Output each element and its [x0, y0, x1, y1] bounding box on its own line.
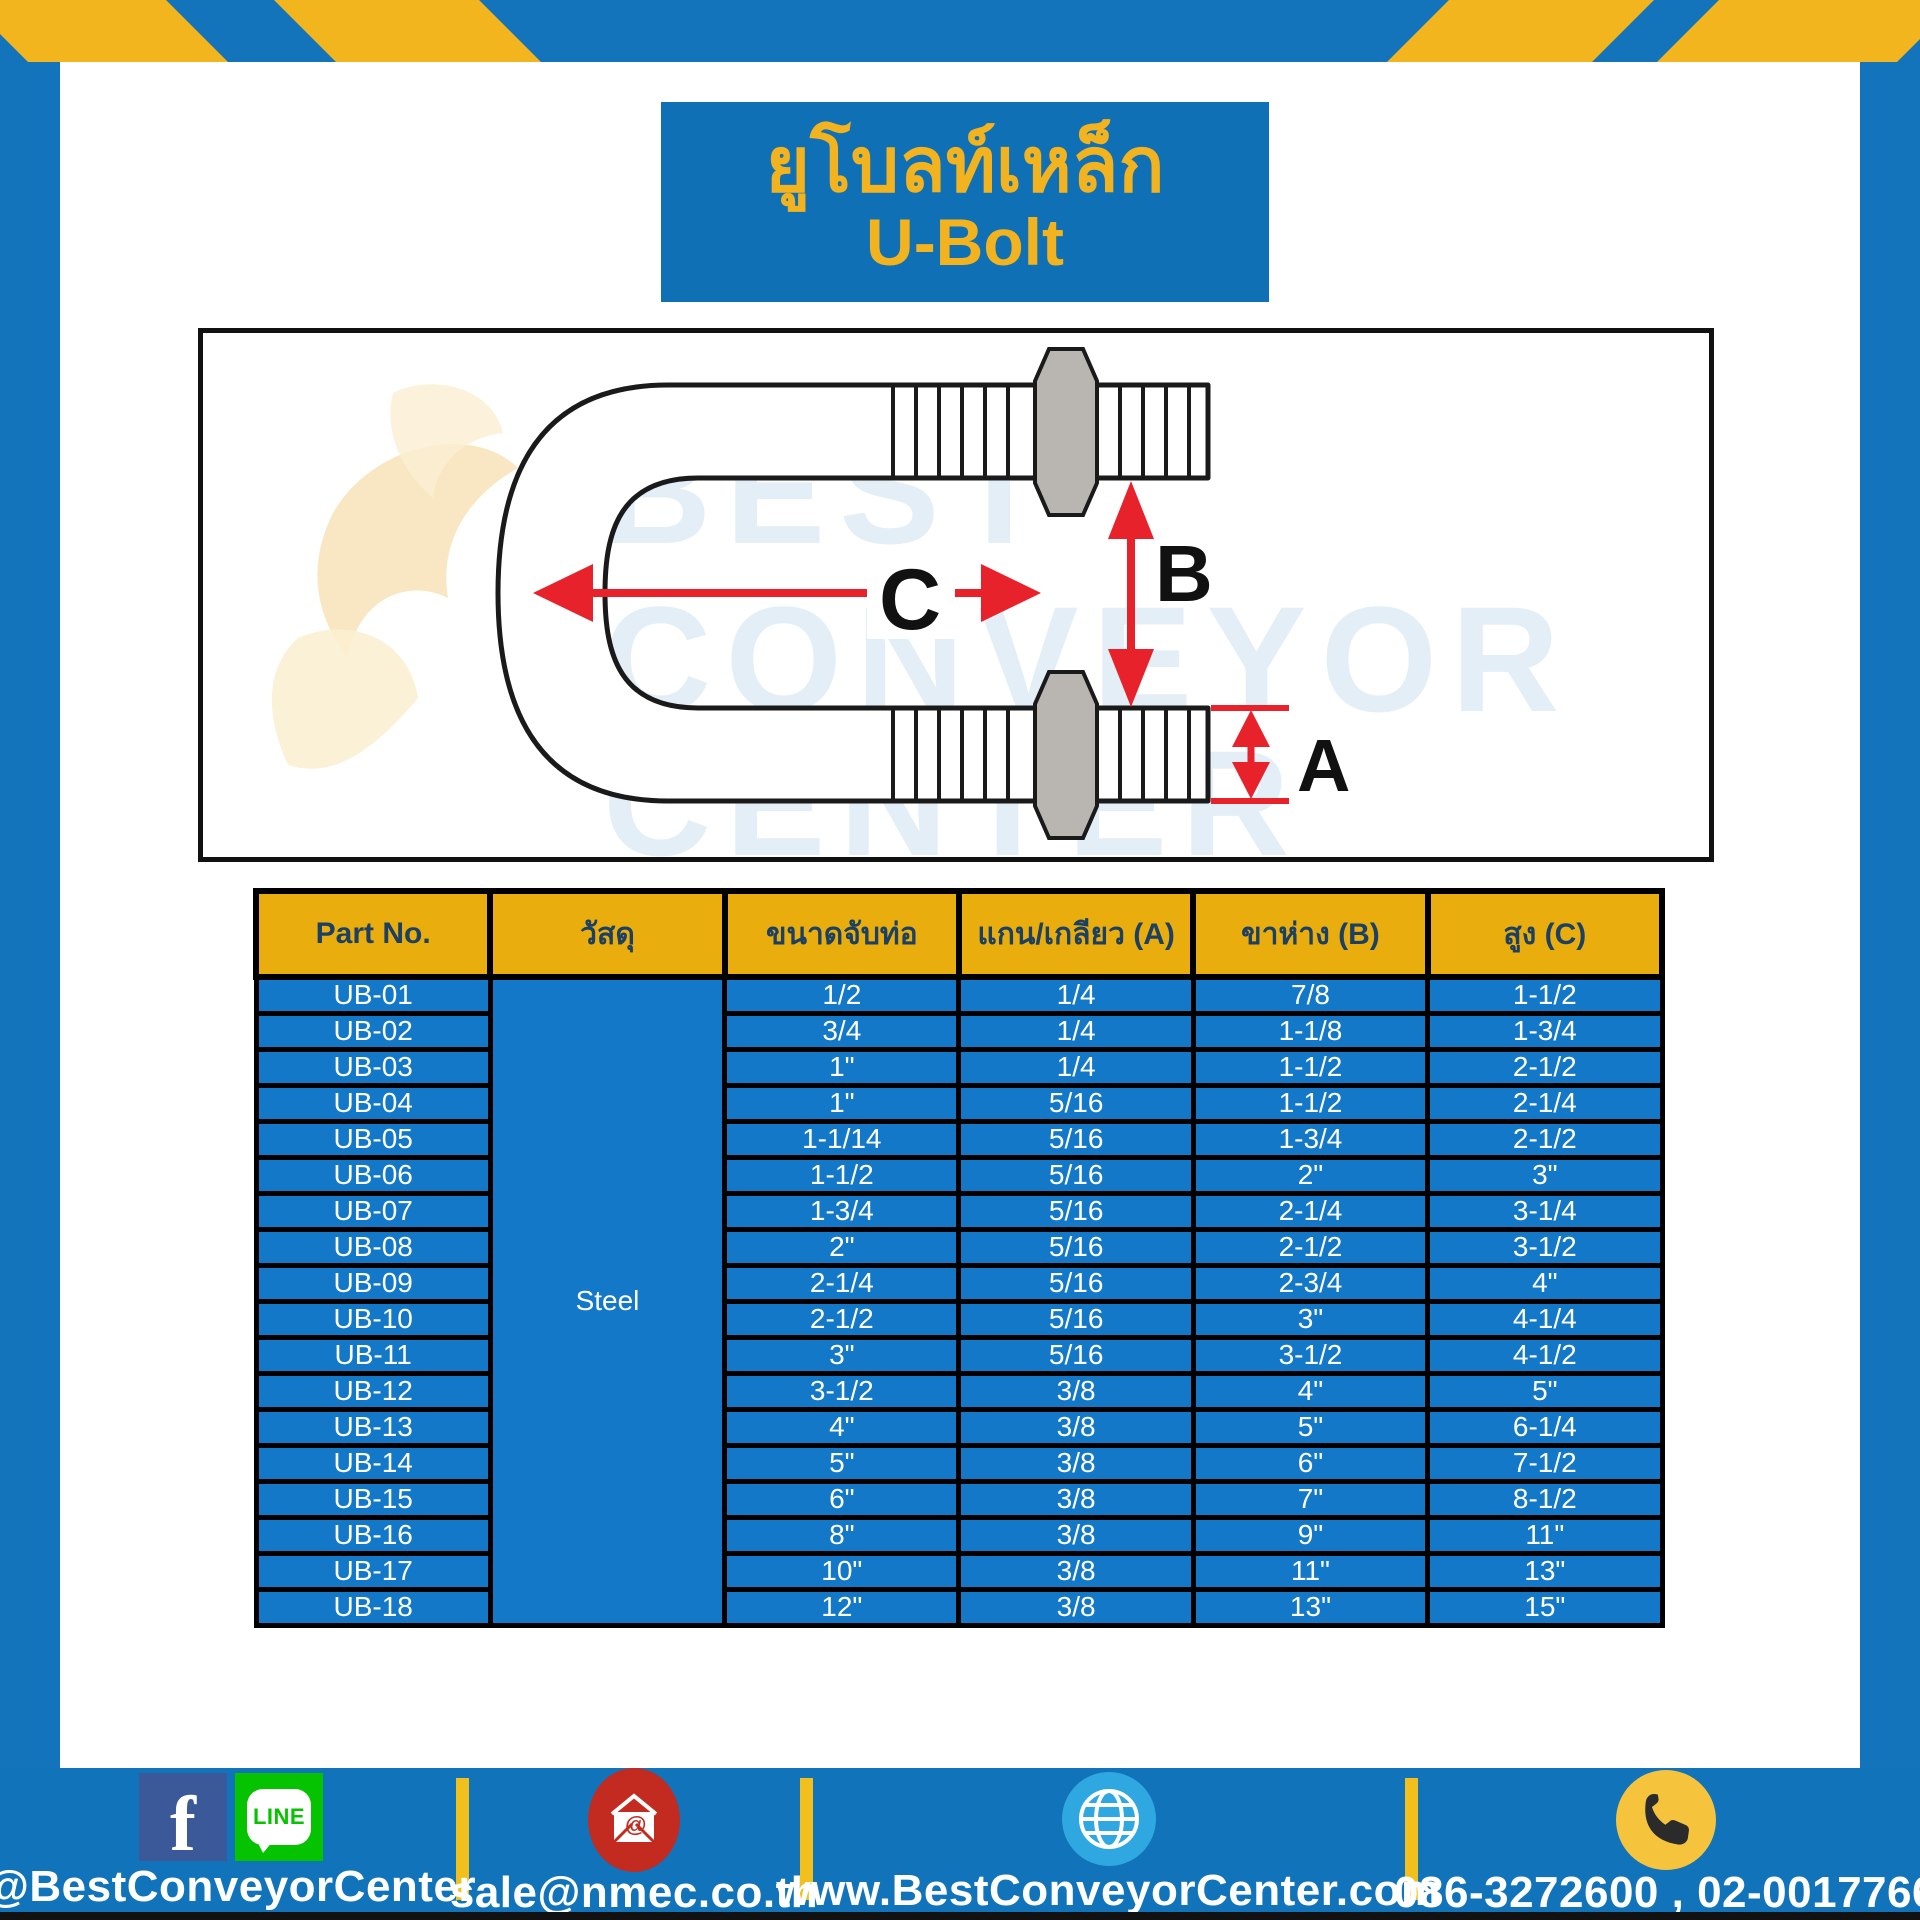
content-sheet: ยูโบลท์เหล็ก U-Bolt BEST CONVEYOR CENTER [60, 62, 1860, 1768]
width-b-cell: 11" [1193, 1553, 1427, 1589]
width-b-cell: 1-3/4 [1193, 1121, 1427, 1157]
product-title-thai: ยูโบลท์เหล็ก [766, 126, 1165, 206]
width-b-cell: 1-1/2 [1193, 1085, 1427, 1121]
part-no-cell: UB-11 [256, 1337, 490, 1373]
table-row: UB-102-1/25/163"4-1/4 [256, 1301, 1662, 1337]
pipe-size-cell: 6" [725, 1481, 959, 1517]
pipe-size-cell: 1-1/14 [725, 1121, 959, 1157]
height-c-cell: 3-1/4 [1428, 1193, 1662, 1229]
footer-phone-section: 086-3272600 , 02-0017766 [1411, 1768, 1920, 1912]
table-row: UB-123-1/23/84"5" [256, 1373, 1662, 1409]
website-text: www.BestConveyorCenter.com [776, 1866, 1440, 1916]
hazard-stripe [268, 0, 549, 62]
pipe-size-cell: 3-1/2 [725, 1373, 959, 1409]
part-no-cell: UB-01 [256, 977, 490, 1013]
width-b-cell: 7" [1193, 1481, 1427, 1517]
thread-a-cell: 3/8 [959, 1517, 1193, 1553]
spec-table-body: UB-01Steel1/21/47/81-1/2UB-023/41/41-1/8… [256, 977, 1662, 1625]
thread-a-cell: 3/8 [959, 1445, 1193, 1481]
height-c-cell: 2-1/2 [1428, 1121, 1662, 1157]
part-no-cell: UB-15 [256, 1481, 490, 1517]
part-no-cell: UB-03 [256, 1049, 490, 1085]
dim-a-label: A [1297, 724, 1350, 807]
pipe-size-cell: 1-3/4 [725, 1193, 959, 1229]
thread-a-cell: 1/4 [959, 977, 1193, 1013]
height-c-cell: 2-1/4 [1428, 1085, 1662, 1121]
product-title-box: ยูโบลท์เหล็ก U-Bolt [661, 102, 1269, 302]
width-b-cell: 6" [1193, 1445, 1427, 1481]
spec-table-header-cell: วัสดุ [490, 891, 724, 977]
width-b-cell: 2-1/2 [1193, 1229, 1427, 1265]
spec-table-header-cell: ขนาดจับท่อ [725, 891, 959, 977]
email-text: sale@nmec.co.th [450, 1868, 818, 1918]
width-b-cell: 1-1/8 [1193, 1013, 1427, 1049]
table-row: UB-1710"3/811"13" [256, 1553, 1662, 1589]
height-c-cell: 1-1/2 [1428, 977, 1662, 1013]
width-b-cell: 2-1/4 [1193, 1193, 1427, 1229]
width-b-cell: 2-3/4 [1193, 1265, 1427, 1301]
table-row: UB-156"3/87"8-1/2 [256, 1481, 1662, 1517]
part-no-cell: UB-04 [256, 1085, 490, 1121]
table-row: UB-1812"3/813"15" [256, 1589, 1662, 1625]
thread-a-cell: 3/8 [959, 1481, 1193, 1517]
width-b-cell: 4" [1193, 1373, 1427, 1409]
thread-a-cell: 5/16 [959, 1301, 1193, 1337]
pipe-size-cell: 1" [725, 1085, 959, 1121]
part-no-cell: UB-05 [256, 1121, 490, 1157]
part-no-cell: UB-07 [256, 1193, 490, 1229]
pipe-size-cell: 2-1/4 [725, 1265, 959, 1301]
part-no-cell: UB-14 [256, 1445, 490, 1481]
email-icon[interactable]: @ [588, 1768, 680, 1872]
width-b-cell: 7/8 [1193, 977, 1427, 1013]
footer-website-section: www.BestConveyorCenter.com [806, 1768, 1411, 1912]
ubolt-drawing-svg: BEST CONVEYOR CENTER [203, 333, 1709, 857]
nut-top [1035, 349, 1097, 515]
thread-a-cell: 3/8 [959, 1373, 1193, 1409]
width-b-cell: 3" [1193, 1301, 1427, 1337]
thread-a-cell: 1/4 [959, 1049, 1193, 1085]
height-c-cell: 6-1/4 [1428, 1409, 1662, 1445]
part-no-cell: UB-02 [256, 1013, 490, 1049]
table-row: UB-071-3/45/162-1/43-1/4 [256, 1193, 1662, 1229]
bottom-edge-strip [0, 1912, 1920, 1920]
social-handle-text: @BestConveyorCenter [0, 1862, 476, 1912]
catalog-page: { "title": { "line_thai": "ยูโบลท์เหล็ก"… [0, 0, 1920, 1920]
thread-a-cell: 5/16 [959, 1085, 1193, 1121]
height-c-cell: 3" [1428, 1157, 1662, 1193]
spec-table-header-cell: ขาห่าง (B) [1193, 891, 1427, 977]
height-c-cell: 15" [1428, 1589, 1662, 1625]
pipe-size-cell: 8" [725, 1517, 959, 1553]
width-b-cell: 3-1/2 [1193, 1337, 1427, 1373]
height-c-cell: 8-1/2 [1428, 1481, 1662, 1517]
height-c-cell: 2-1/2 [1428, 1049, 1662, 1085]
pipe-size-cell: 1" [725, 1049, 959, 1085]
pipe-size-cell: 3" [725, 1337, 959, 1373]
spec-table: Part No.วัสดุขนาดจับท่อแกน/เกลียว (A)ขาห… [253, 888, 1665, 1628]
facebook-icon[interactable]: f [139, 1773, 227, 1861]
thread-a-cell: 3/8 [959, 1409, 1193, 1445]
logo-watermark [272, 384, 518, 768]
table-row: UB-031"1/41-1/22-1/2 [256, 1049, 1662, 1085]
table-row: UB-01Steel1/21/47/81-1/2 [256, 977, 1662, 1013]
pipe-size-cell: 3/4 [725, 1013, 959, 1049]
part-no-cell: UB-17 [256, 1553, 490, 1589]
height-c-cell: 1-3/4 [1428, 1013, 1662, 1049]
line-icon[interactable]: LINE [235, 1773, 323, 1861]
dim-c-label: C [879, 552, 941, 648]
table-row: UB-041"5/161-1/22-1/4 [256, 1085, 1662, 1121]
ubolt-diagram: BEST CONVEYOR CENTER [198, 328, 1714, 862]
part-no-cell: UB-18 [256, 1589, 490, 1625]
pipe-size-cell: 1-1/2 [725, 1157, 959, 1193]
part-no-cell: UB-09 [256, 1265, 490, 1301]
table-row: UB-134"3/85"6-1/4 [256, 1409, 1662, 1445]
hazard-stripe [1379, 0, 1660, 62]
width-b-cell: 9" [1193, 1517, 1427, 1553]
pipe-size-cell: 1/2 [725, 977, 959, 1013]
width-b-cell: 13" [1193, 1589, 1427, 1625]
thread-a-cell: 5/16 [959, 1121, 1193, 1157]
height-c-cell: 13" [1428, 1553, 1662, 1589]
thread-a-cell: 5/16 [959, 1337, 1193, 1373]
part-no-cell: UB-13 [256, 1409, 490, 1445]
material-cell: Steel [490, 977, 724, 1625]
width-b-cell: 5" [1193, 1409, 1427, 1445]
table-row: UB-061-1/25/162"3" [256, 1157, 1662, 1193]
hazard-stripe [1649, 0, 1920, 62]
table-row: UB-168"3/89"11" [256, 1517, 1662, 1553]
spec-table-header-row: Part No.วัสดุขนาดจับท่อแกน/เกลียว (A)ขาห… [256, 891, 1662, 977]
pipe-size-cell: 12" [725, 1589, 959, 1625]
part-no-cell: UB-12 [256, 1373, 490, 1409]
width-b-cell: 2" [1193, 1157, 1427, 1193]
height-c-cell: 4" [1428, 1265, 1662, 1301]
thread-a-cell: 3/8 [959, 1553, 1193, 1589]
footer-social-section: f LINE @BestConveyorCenter [0, 1768, 462, 1912]
spec-table-header-cell: สูง (C) [1428, 891, 1662, 977]
table-row: UB-051-1/145/161-3/42-1/2 [256, 1121, 1662, 1157]
table-row: UB-082"5/162-1/23-1/2 [256, 1229, 1662, 1265]
product-title-english: U-Bolt [866, 206, 1064, 279]
part-no-cell: UB-10 [256, 1301, 490, 1337]
table-row: UB-113"5/163-1/24-1/2 [256, 1337, 1662, 1373]
height-c-cell: 7-1/2 [1428, 1445, 1662, 1481]
table-row: UB-092-1/45/162-3/44" [256, 1265, 1662, 1301]
top-hazard-bar [0, 0, 1920, 62]
pipe-size-cell: 4" [725, 1409, 959, 1445]
thread-a-cell: 1/4 [959, 1013, 1193, 1049]
pipe-size-cell: 10" [725, 1553, 959, 1589]
thread-a-cell: 5/16 [959, 1157, 1193, 1193]
height-c-cell: 4-1/4 [1428, 1301, 1662, 1337]
phone-icon[interactable] [1616, 1770, 1716, 1870]
thread-a-cell: 5/16 [959, 1265, 1193, 1301]
height-c-cell: 5" [1428, 1373, 1662, 1409]
globe-icon[interactable] [1062, 1772, 1156, 1866]
dim-b-label: B [1155, 529, 1213, 618]
thread-a-cell: 3/8 [959, 1589, 1193, 1625]
phone-numbers-text: 086-3272600 , 02-0017766 [1394, 1868, 1920, 1918]
height-c-cell: 4-1/2 [1428, 1337, 1662, 1373]
pipe-size-cell: 2-1/2 [725, 1301, 959, 1337]
spec-table-header-cell: แกน/เกลียว (A) [959, 891, 1193, 977]
nut-bottom [1035, 672, 1097, 838]
svg-text:@: @ [625, 1812, 646, 1837]
footer-email-section: @ sale@nmec.co.th [462, 1768, 806, 1912]
table-row: UB-145"3/86"7-1/2 [256, 1445, 1662, 1481]
table-row: UB-023/41/41-1/81-3/4 [256, 1013, 1662, 1049]
spec-table-header-cell: Part No. [256, 891, 490, 977]
part-no-cell: UB-06 [256, 1157, 490, 1193]
height-c-cell: 3-1/2 [1428, 1229, 1662, 1265]
pipe-size-cell: 2" [725, 1229, 959, 1265]
part-no-cell: UB-08 [256, 1229, 490, 1265]
thread-a-cell: 5/16 [959, 1193, 1193, 1229]
footer-contact-bar: f LINE @BestConveyorCenter @ sale@nmec.c… [0, 1768, 1920, 1912]
width-b-cell: 1-1/2 [1193, 1049, 1427, 1085]
pipe-size-cell: 5" [725, 1445, 959, 1481]
hazard-stripe [0, 0, 236, 62]
part-no-cell: UB-16 [256, 1517, 490, 1553]
thread-a-cell: 5/16 [959, 1229, 1193, 1265]
height-c-cell: 11" [1428, 1517, 1662, 1553]
